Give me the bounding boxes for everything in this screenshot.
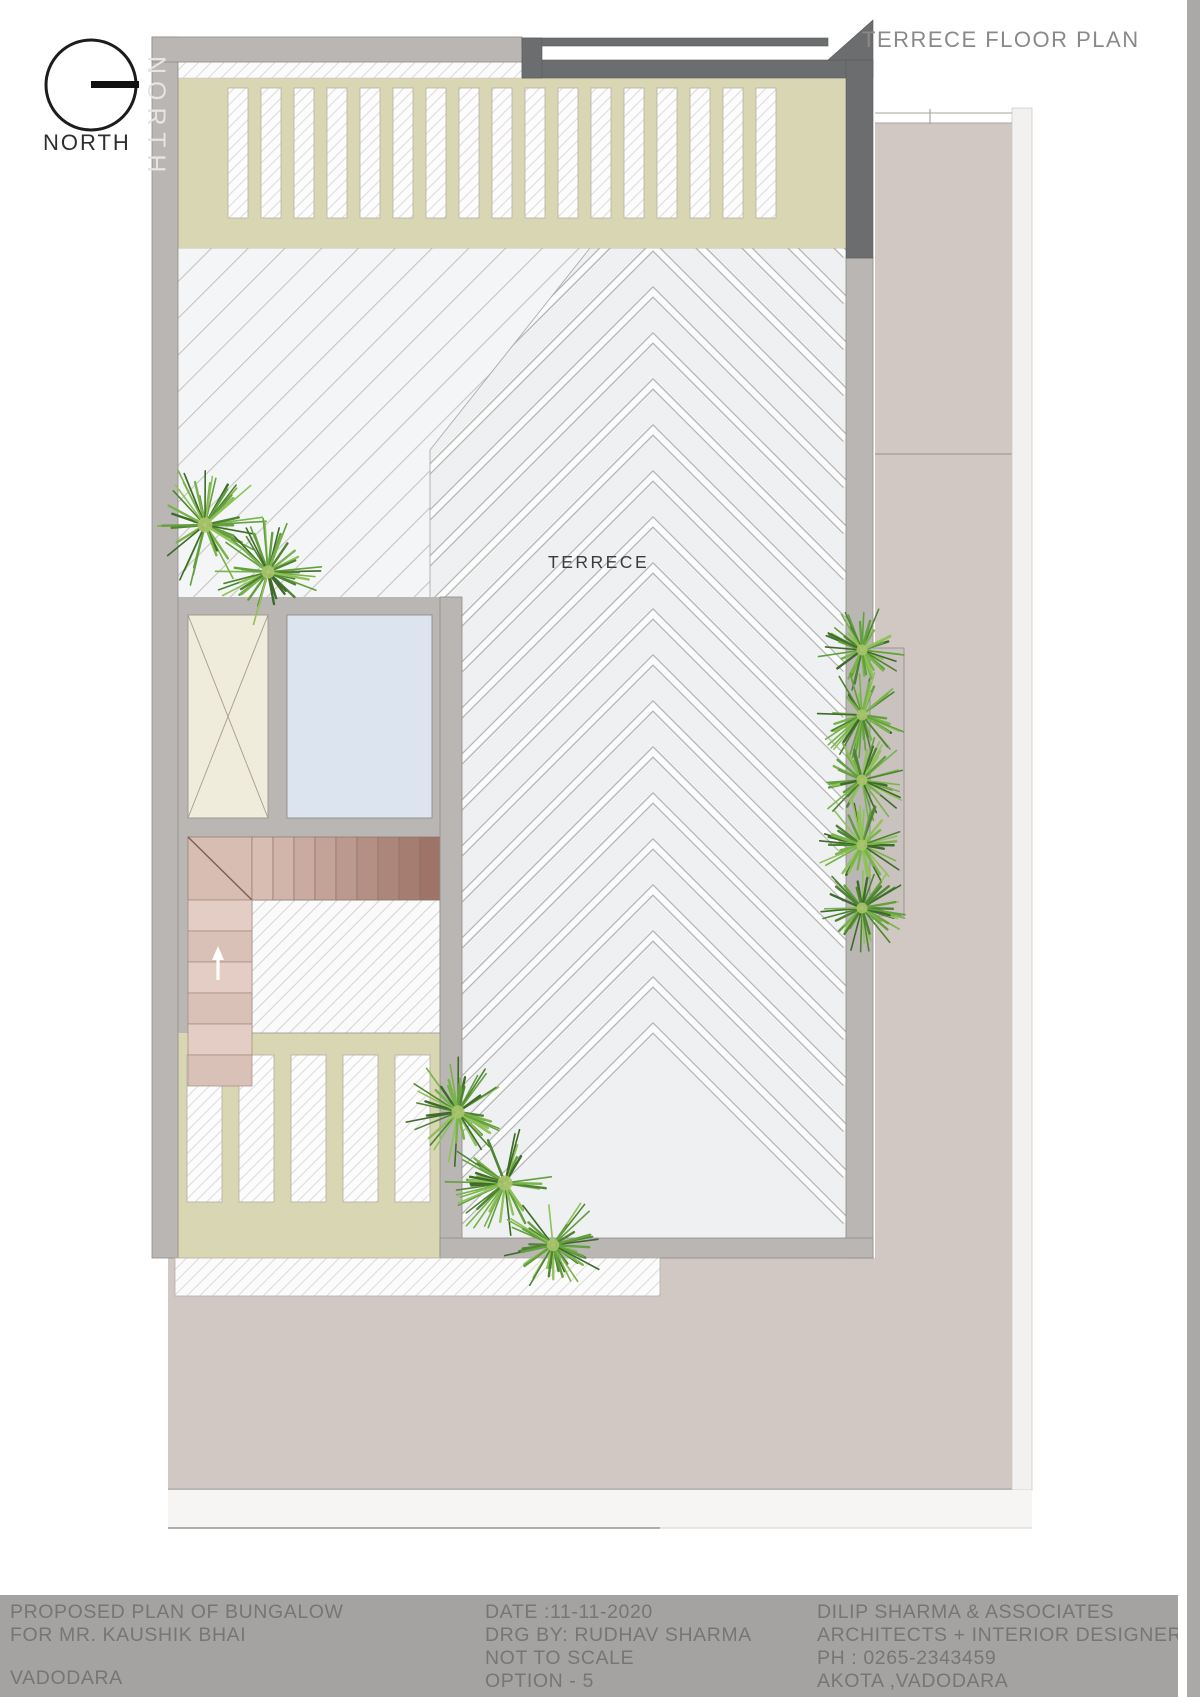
service-block	[178, 597, 441, 1258]
project-city: VADODARA	[10, 1667, 344, 1690]
drawing-author: DRG BY: RUDHAV SHARMA	[485, 1624, 752, 1647]
north-watermark: NORTH	[141, 56, 170, 179]
sheet-title: TERRECE FLOOR PLAN	[862, 27, 1140, 53]
drawing-scale: NOT TO SCALE	[485, 1647, 752, 1670]
stair-void	[252, 900, 440, 1033]
top-pergola	[178, 62, 846, 248]
firm-name: DILIP SHARMA & ASSOCIATES	[817, 1601, 1196, 1624]
firm-tagline: ARCHITECTS + INTERIOR DESIGNERS	[817, 1624, 1196, 1647]
north-arrow-icon	[46, 40, 139, 130]
drawing-sheet: TERRECE FLOOR PLAN NORTH NORTH TERRECE P…	[0, 0, 1200, 1697]
room-label-terrece: TERRECE	[548, 552, 649, 573]
title-block-project: PROPOSED PLAN OF BUNGALOW FOR MR. KAUSHI…	[10, 1601, 344, 1690]
floor-plan-drawing	[0, 0, 1200, 1697]
page-edge-bar	[1187, 0, 1200, 1697]
water-tank	[287, 615, 432, 818]
title-block-firm: DILIP SHARMA & ASSOCIATES ARCHITECTS + I…	[817, 1601, 1196, 1693]
north-label: NORTH	[43, 130, 131, 156]
title-block-drawing-info: DATE :11-11-2020 DRG BY: RUDHAV SHARMA N…	[485, 1601, 752, 1693]
firm-phone: PH : 0265-2343459	[817, 1647, 1196, 1670]
drawing-date: DATE :11-11-2020	[485, 1601, 752, 1624]
project-line1: PROPOSED PLAN OF BUNGALOW	[10, 1601, 344, 1624]
drawing-option: OPTION - 5	[485, 1670, 752, 1693]
title-block: PROPOSED PLAN OF BUNGALOW FOR MR. KAUSHI…	[0, 1595, 1200, 1697]
firm-address: AKOTA ,VADODARA	[817, 1670, 1196, 1693]
page-margin-strip	[1178, 0, 1187, 1697]
pergola-slats	[228, 88, 776, 218]
project-line2: FOR MR. KAUSHIK BHAI	[10, 1624, 344, 1647]
